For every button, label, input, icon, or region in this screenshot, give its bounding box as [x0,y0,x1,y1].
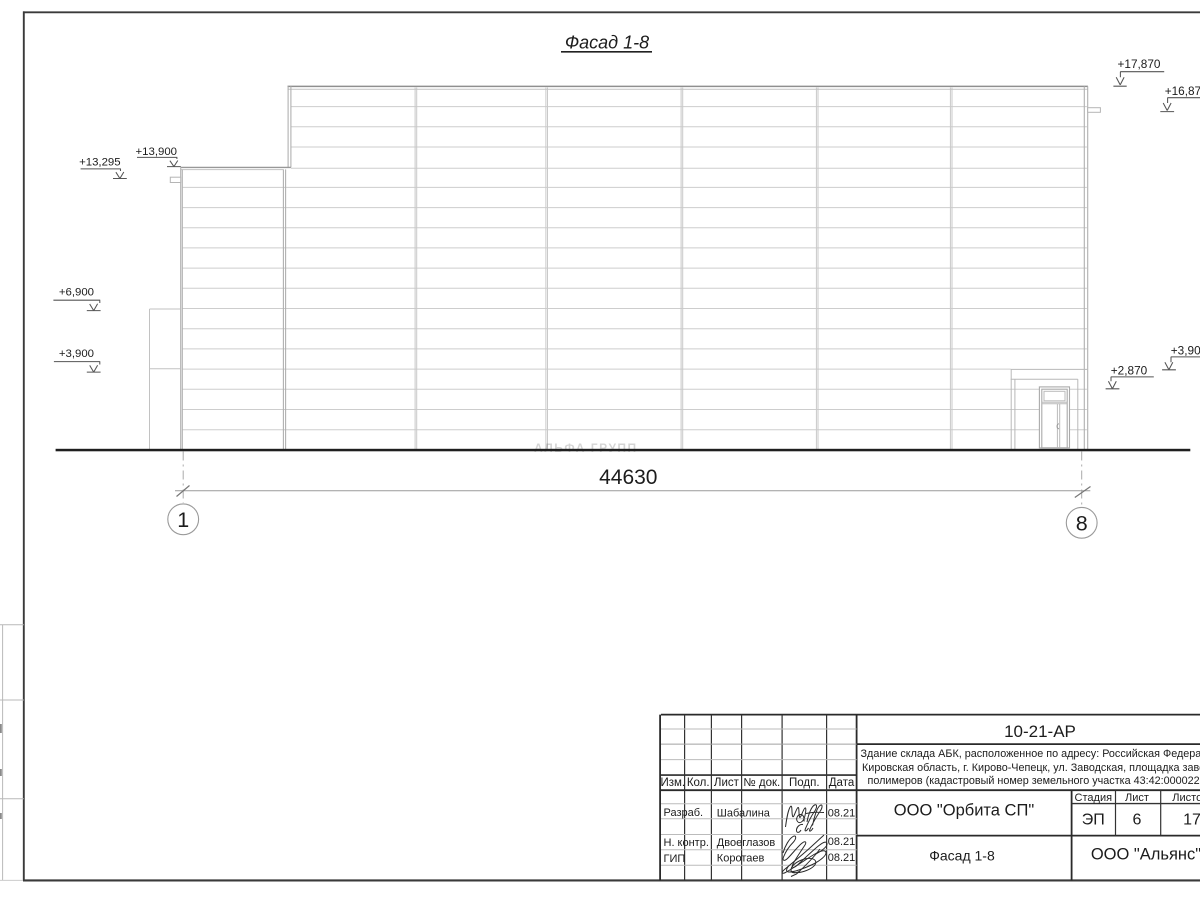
svg-text:17: 17 [1183,811,1200,828]
svg-text:6: 6 [1133,811,1142,828]
svg-text:08.21: 08.21 [828,852,856,864]
svg-text:Изм.: Изм. [660,777,685,789]
svg-text:Подп.: Подп. [789,777,820,789]
svg-text:08.21: 08.21 [828,836,856,848]
svg-text:Фасад 1-8: Фасад 1-8 [929,848,995,864]
svg-text:Лист: Лист [1125,792,1149,804]
svg-text:+13,900: +13,900 [136,146,178,158]
svg-text:+2,870: +2,870 [1111,364,1148,378]
svg-text:+3,900: +3,900 [1171,344,1200,358]
svg-text:№ док.: № док. [743,777,780,789]
svg-text:Стадия: Стадия [1075,792,1113,804]
svg-text:Кол.: Кол. [687,777,710,789]
svg-text:Здание склада АБК, расположенн: Здание склада АБК, расположенное по адре… [861,748,1200,760]
svg-text:ООО "Альянс": ООО "Альянс" [1091,845,1200,863]
svg-text:Н. контр.: Н. контр. [664,837,709,849]
svg-text:Фасад 1-8: Фасад 1-8 [565,33,649,53]
svg-text:+6,900: +6,900 [59,287,94,299]
svg-text:10-21-АР: 10-21-АР [1004,722,1076,741]
svg-text:АЛЬФА ГРУПП: АЛЬФА ГРУПП [534,441,638,455]
svg-text:Коротаев: Коротаев [717,853,765,865]
svg-text:+16,870: +16,870 [1165,84,1200,98]
svg-text:+17,870: +17,870 [1118,57,1161,71]
svg-text:+3,900: +3,900 [59,348,94,360]
svg-text:Дата: Дата [829,777,855,789]
svg-text:полимеров (кадастровый номер з: полимеров (кадастровый номер земельного … [868,775,1200,787]
svg-text:ООО "Орбита СП": ООО "Орбита СП" [894,802,1035,820]
svg-text:Двоеглазов: Двоеглазов [717,837,776,849]
svg-text:Листов: Листов [1172,792,1200,804]
svg-text:1: 1 [177,508,189,532]
svg-text:Кировская область, г. Кирово-Ч: Кировская область, г. Кирово-Чепецк, ул.… [862,762,1200,774]
svg-text:+13,295: +13,295 [79,157,121,169]
svg-text:8: 8 [1076,511,1088,535]
svg-text:Шабалина: Шабалина [717,808,771,820]
svg-text:ГИП: ГИП [664,853,686,865]
svg-text:ЭП: ЭП [1082,811,1105,828]
svg-text:08.21: 08.21 [828,807,856,819]
svg-text:Лист: Лист [714,777,740,789]
svg-text:Разраб.: Разраб. [664,807,704,819]
svg-text:44630: 44630 [599,466,657,489]
